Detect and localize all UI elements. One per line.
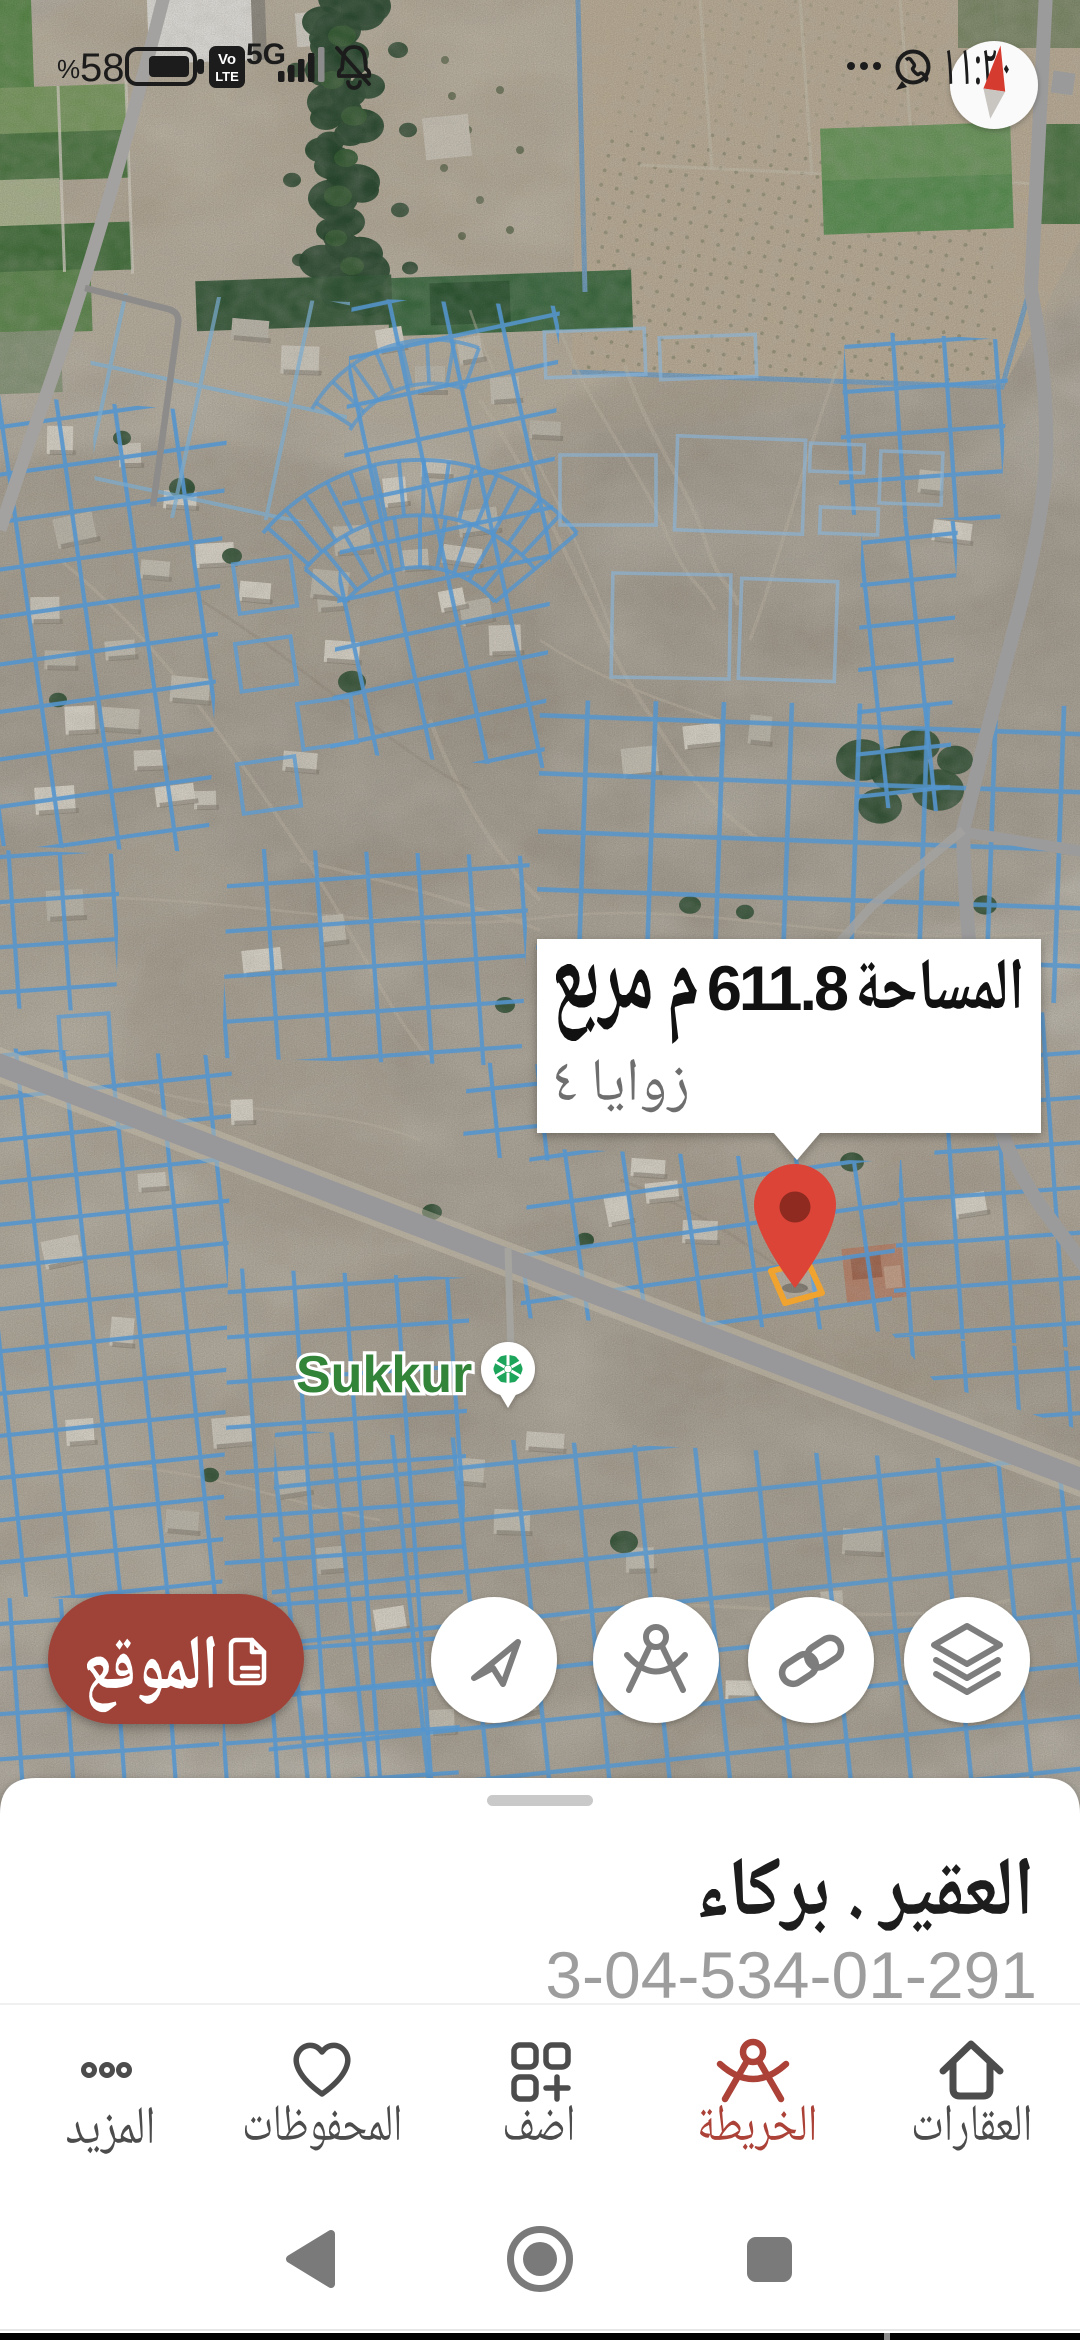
- svg-text:%: %: [57, 54, 80, 84]
- svg-text:Sukkur: Sukkur: [296, 1346, 472, 1404]
- svg-text:3-04-534-01-291: 3-04-534-01-291: [545, 1938, 1037, 2012]
- svg-text:LTE: LTE: [215, 69, 239, 84]
- svg-text:Vo: Vo: [218, 51, 236, 68]
- svg-text:611.8: 611.8: [707, 954, 848, 1024]
- svg-text:58: 58: [80, 46, 125, 90]
- svg-text:5G: 5G: [246, 38, 286, 71]
